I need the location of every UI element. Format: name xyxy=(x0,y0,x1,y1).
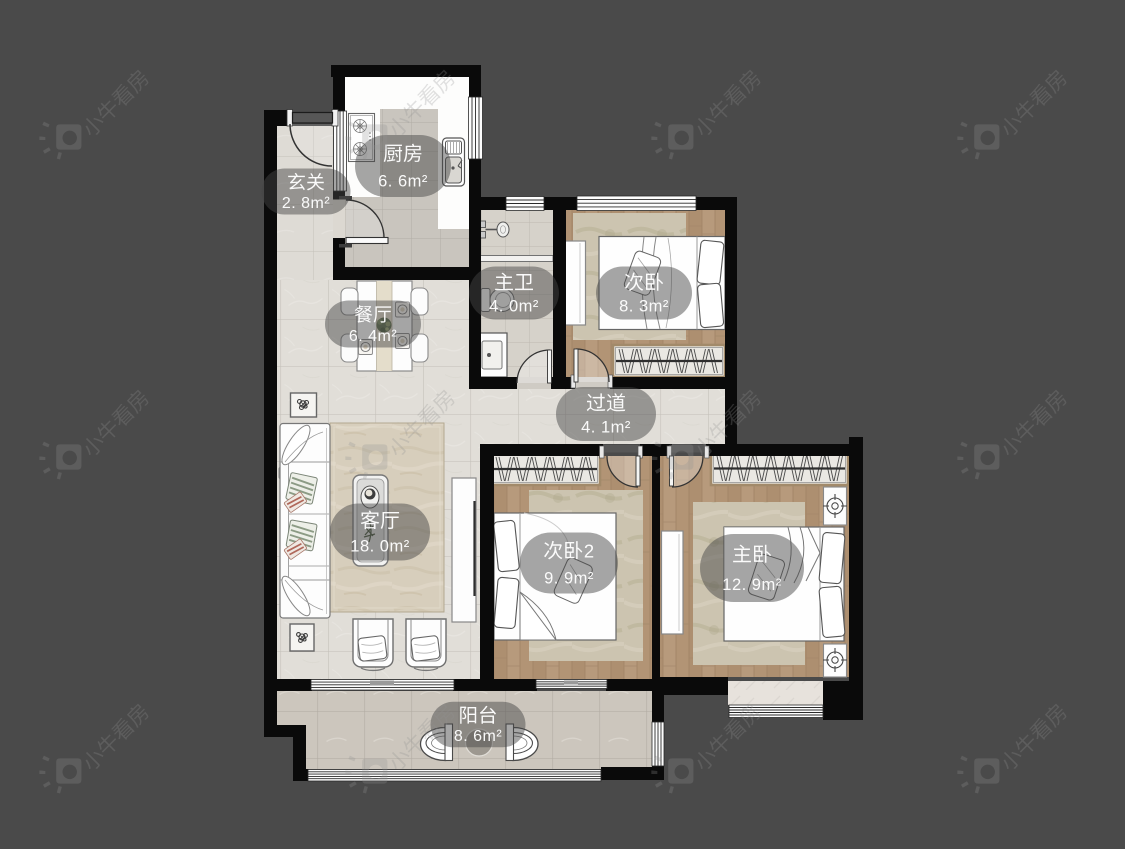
svg-text:4. 0m²: 4. 0m² xyxy=(489,297,539,315)
svg-text:2: 2 xyxy=(584,541,594,562)
svg-text:9. 9m²: 9. 9m² xyxy=(544,569,594,587)
svg-text:8. 3m²: 8. 3m² xyxy=(619,297,669,315)
svg-text:6. 6m²: 6. 6m² xyxy=(378,173,428,191)
svg-text:6. 4m²: 6. 4m² xyxy=(349,328,398,345)
svg-text:4. 1m²: 4. 1m² xyxy=(581,419,631,437)
svg-text:18. 0m²: 18. 0m² xyxy=(350,537,409,555)
svg-text:8. 6m²: 8. 6m² xyxy=(454,728,503,745)
svg-text:12. 9m²: 12. 9m² xyxy=(722,576,781,594)
svg-text:2. 8m²: 2. 8m² xyxy=(282,195,331,212)
